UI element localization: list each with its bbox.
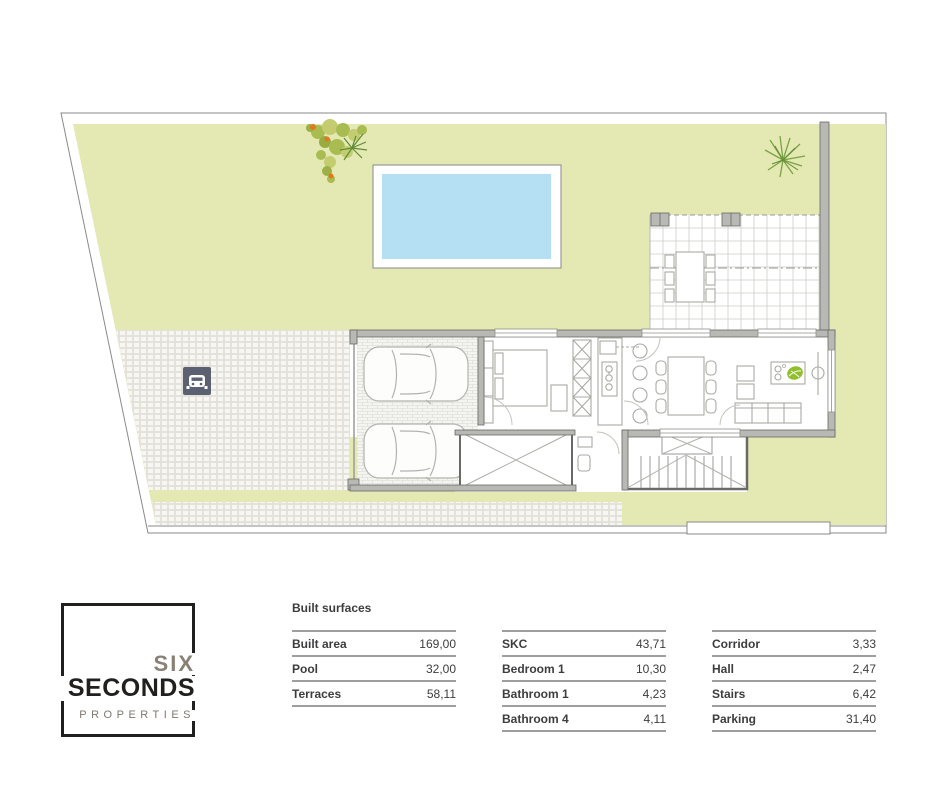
- surface-row: Pool 32,00: [292, 655, 456, 680]
- surface-label: Parking: [712, 712, 756, 726]
- surface-label: SKC: [502, 637, 527, 651]
- surface-row: Terraces 58,11: [292, 680, 456, 707]
- surface-label: Pool: [292, 662, 318, 676]
- surface-value: 169,00: [419, 637, 456, 651]
- surface-label: Bathroom 1: [502, 687, 569, 701]
- surface-row: Parking 31,40: [712, 705, 876, 732]
- terrace-pergola: [650, 213, 828, 330]
- built-surfaces-heading: Built surfaces: [292, 601, 882, 615]
- gate: [687, 522, 830, 534]
- surface-label: Built area: [292, 637, 347, 651]
- surfaces-table-1: Built area 169,00 Pool 32,00 Terraces 58…: [292, 630, 456, 707]
- sofa: [735, 403, 801, 423]
- surface-label: Stairs: [712, 687, 745, 701]
- surface-row: Hall 2,47: [712, 655, 876, 680]
- surface-label: Corridor: [712, 637, 760, 651]
- surface-value: 6,42: [853, 687, 876, 701]
- outdoor-dining-table: [665, 252, 715, 302]
- surfaces-table-2: SKC 43,71 Bedroom 1 10,30 Bathroom 1 4,2…: [502, 630, 666, 732]
- surface-row: Corridor 3,33: [712, 630, 876, 655]
- storage-room: [460, 432, 572, 488]
- wardrobe: [573, 340, 591, 416]
- logo-word-properties: PROPERTIES: [73, 710, 195, 721]
- surface-value: 32,00: [426, 662, 456, 676]
- surfaces-table-3: Corridor 3,33 Hall 2,47 Stairs 6,42 Park…: [712, 630, 876, 732]
- car-bottom: [364, 421, 468, 481]
- surface-label: Bathroom 4: [502, 712, 569, 726]
- surface-row: Bathroom 1 4,23: [502, 680, 666, 705]
- logo-word-seconds: SECONDS: [60, 676, 195, 701]
- surface-label: Terraces: [292, 687, 341, 701]
- side-wall: [820, 122, 829, 330]
- floor-plan: [0, 0, 940, 560]
- surface-row: Stairs 6,42: [712, 680, 876, 705]
- surface-row: Bedroom 1 10,30: [502, 655, 666, 680]
- car-top: [364, 344, 468, 404]
- dining-table: [668, 357, 704, 415]
- stairs: [627, 433, 747, 489]
- surface-value: 43,71: [636, 637, 666, 651]
- surface-row: Bathroom 4 4,11: [502, 705, 666, 732]
- surface-value: 3,33: [853, 637, 876, 651]
- surface-value: 10,30: [636, 662, 666, 676]
- surface-value: 4,23: [643, 687, 666, 701]
- surface-value: 2,47: [853, 662, 876, 676]
- surface-row: SKC 43,71: [502, 630, 666, 655]
- kitchen-island: [771, 362, 805, 384]
- surface-value: 58,11: [427, 687, 456, 701]
- pool: [373, 165, 561, 268]
- surface-value: 4,11: [644, 712, 666, 726]
- surface-label: Bedroom 1: [502, 662, 565, 676]
- logo-word-six: SIX: [144, 653, 195, 675]
- surface-row: Built area 169,00: [292, 630, 456, 655]
- company-logo: SIX SECONDS PROPERTIES: [61, 603, 195, 737]
- surface-label: Hall: [712, 662, 734, 676]
- surface-value: 31,40: [846, 712, 876, 726]
- parking-sign-icon: [183, 367, 211, 395]
- built-surfaces-section: Built surfaces Built area 169,00 Pool 32…: [292, 601, 882, 732]
